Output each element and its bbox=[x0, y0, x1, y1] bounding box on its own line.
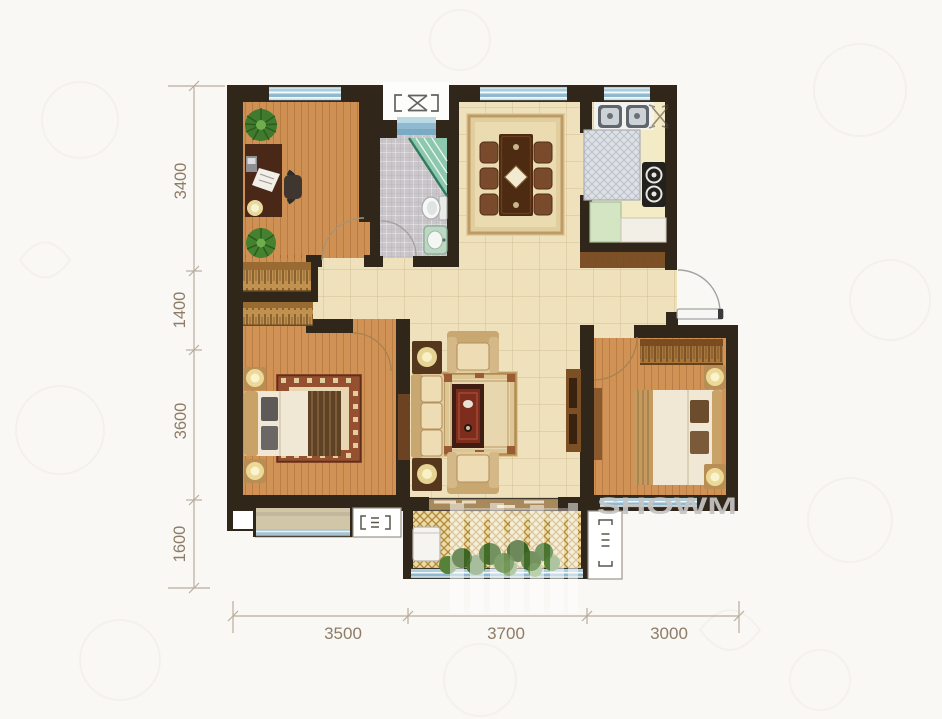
svg-text:3700: 3700 bbox=[487, 624, 525, 643]
svg-text:3500: 3500 bbox=[324, 624, 362, 643]
svg-text:3600: 3600 bbox=[172, 403, 190, 440]
svg-text:3000: 3000 bbox=[650, 624, 688, 643]
svg-text:3400: 3400 bbox=[172, 163, 190, 200]
svg-text:SHOWM: SHOWM bbox=[597, 493, 737, 520]
svg-text:1600: 1600 bbox=[171, 526, 189, 563]
svg-text:1400: 1400 bbox=[171, 292, 189, 329]
